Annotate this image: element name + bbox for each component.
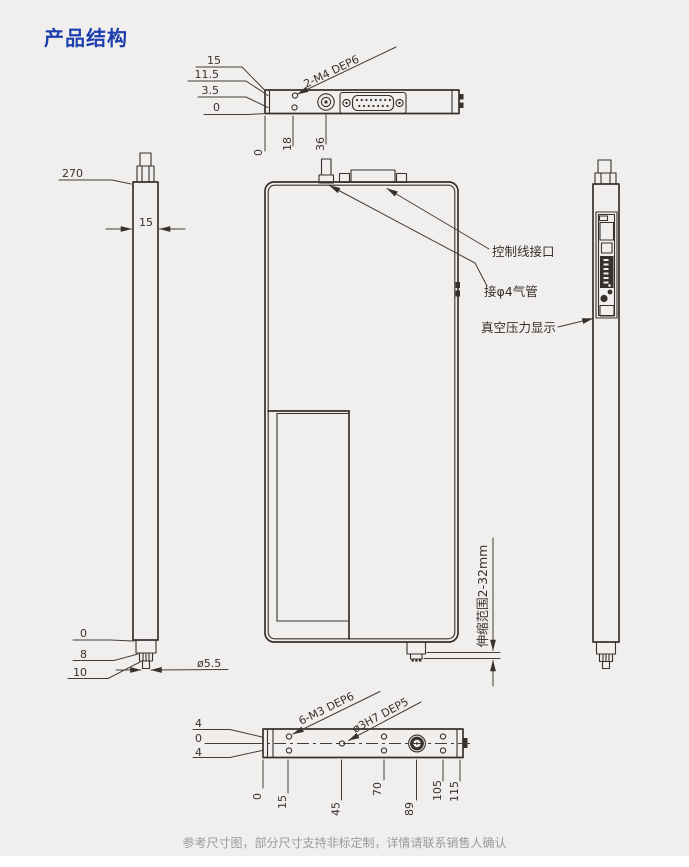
annotation-vacuum-display: 真空压力显示 [481,320,556,335]
offset-dims: 4 0 4 [193,717,262,759]
thread-callout-label: 6-M3 DEP6 [297,690,357,728]
shaft-tip [136,640,156,669]
air-fitting-top [318,94,334,110]
m4-hole [292,105,297,110]
svg-text:45: 45 [330,802,343,816]
product-structure-page: { "page": { "title": "产品结构", "footer": "… [0,0,689,867]
top-view: 2-M4 DEP6 15 11.5 3.5 0 0 18 36 [188,47,464,156]
svg-text:70: 70 [371,782,384,796]
svg-text:0: 0 [213,101,220,114]
width-dim: 15 [139,216,153,229]
svg-text:36: 36 [314,137,327,151]
display-window [600,223,614,241]
length-dim: 270 [62,167,83,180]
bottom-view: 4 0 4 6-M3 DEP6 ø3H7 DEP5 0 15 45 70 89 … [193,690,472,816]
stroke-range-label: 伸缩范围2-32mm [475,545,490,648]
bottom-position-dims: 0 15 45 70 89 105 115 [251,760,461,816]
top-connector [137,153,154,182]
air-fitting-front [319,159,334,183]
footer-note: 参考尺寸图，部分尺寸支持非标定制，详情请联系销售人确认 [0,834,689,851]
svg-text:0: 0 [195,732,202,745]
top-view-position-dims: 0 18 36 [252,113,327,156]
bottom-white-strip [0,856,689,867]
panel-button [600,295,607,302]
annotation-control-interface: 控制线接口 [492,244,555,259]
tip-diameter-dim: ø5.5 [197,657,221,670]
panel-button [608,290,613,295]
top-view-edge-dims: 15 11.5 3.5 0 [188,54,268,115]
svg-text:8: 8 [80,648,87,661]
svg-text:15: 15 [276,795,289,809]
dsub-pins [356,99,391,107]
dsub-connector-front [340,170,407,183]
front-view: 控制线接口 接φ4气管 真空压力显示 伸缩范围2-32mm [265,159,593,686]
pressure-display-panel [596,212,617,318]
svg-text:15: 15 [207,54,221,67]
m3-hole [286,748,291,753]
svg-text:0: 0 [80,627,87,640]
technical-drawing: 2-M4 DEP6 15 11.5 3.5 0 0 18 36 [0,0,689,867]
svg-text:89: 89 [403,802,416,816]
svg-text:18: 18 [281,137,294,151]
right-side-view [593,160,619,669]
m4-hole [292,93,297,98]
thread-callout-label: 2-M4 DEP6 [302,53,362,91]
nozzle [407,642,426,662]
top-connector [595,160,616,184]
svg-text:4: 4 [195,717,202,730]
shaft-boss [409,735,426,752]
right-connector-bump [459,94,464,100]
annotation-air-tube: 接φ4气管 [484,284,538,299]
dsub-connector-top [340,93,406,114]
tip-dims: 0 8 10 [68,627,140,679]
svg-text:10: 10 [73,666,87,679]
left-side-view: 270 15 0 8 10 ø5.5 [59,153,228,679]
m3-hole [440,748,445,753]
svg-text:0: 0 [251,793,264,800]
stroke-range-dim: 伸缩范围2-32mm [424,538,500,686]
svg-text:0: 0 [252,149,265,156]
m3-hole [381,734,386,739]
m3-hole [286,734,291,739]
svg-text:115: 115 [448,781,461,802]
m3-hole [440,734,445,739]
svg-text:11.5: 11.5 [195,68,220,81]
m3-hole [381,748,386,753]
svg-text:105: 105 [431,780,444,801]
svg-text:3.5: 3.5 [202,84,220,97]
shaft-tip [597,642,616,669]
